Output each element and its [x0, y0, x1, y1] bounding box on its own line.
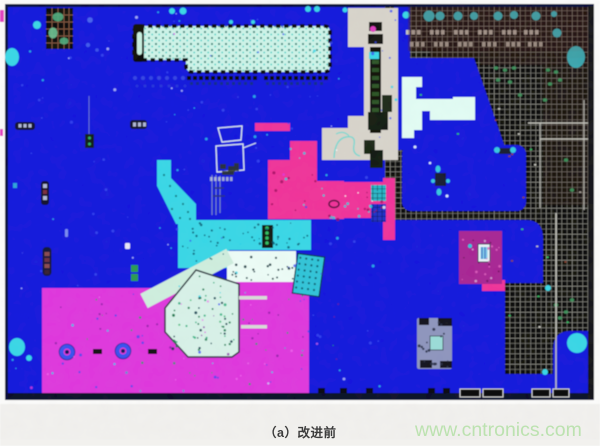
svg-text:（a）改进前: （a）改进前	[264, 425, 336, 440]
svg-text:www.cntronics.com: www.cntronics.com	[414, 419, 582, 441]
